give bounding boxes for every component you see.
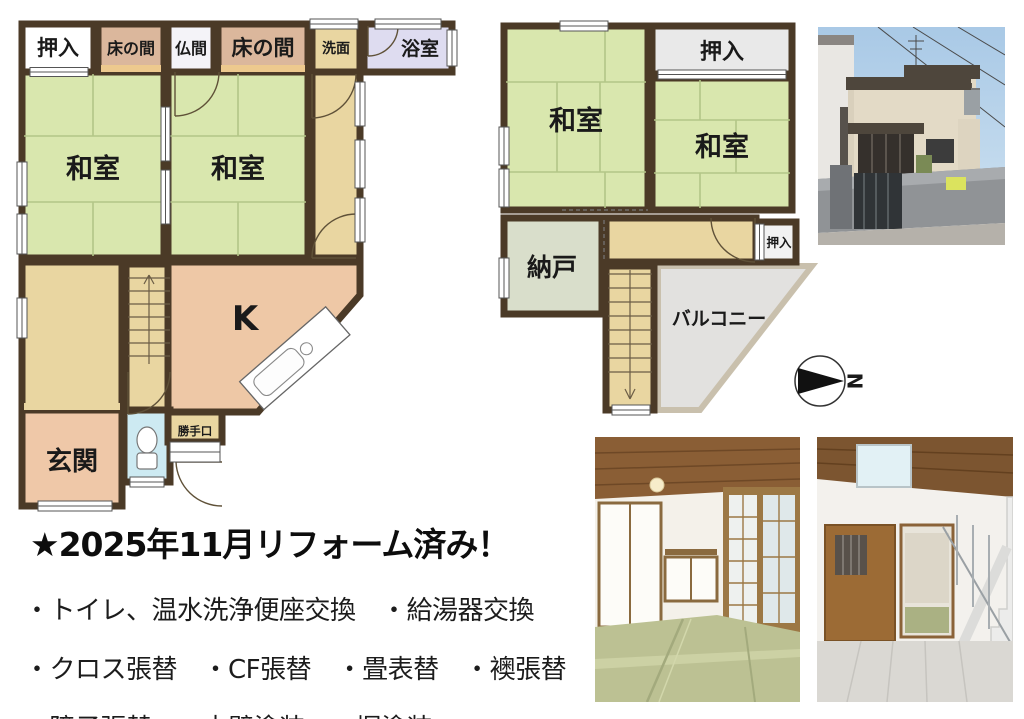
genkan-step-strip bbox=[24, 403, 120, 410]
tokonoma-strip bbox=[221, 65, 305, 72]
hallway-stairs-photo bbox=[817, 437, 1013, 702]
floor2-label-nando: 納戸 bbox=[527, 253, 577, 282]
ceiling-light bbox=[857, 445, 911, 487]
tatami-floor bbox=[595, 615, 800, 702]
floor2-balcony bbox=[658, 266, 812, 410]
floor2-label-oshiire-top: 押入 bbox=[700, 39, 744, 65]
floor1-label-oshiire: 押入 bbox=[37, 36, 79, 60]
floor1-hallway-right bbox=[312, 72, 360, 258]
room-opening bbox=[901, 525, 953, 637]
floor1-label-bathroom: 浴室 bbox=[401, 37, 439, 60]
floor1-hallway-left bbox=[22, 262, 122, 410]
floor2-label-washitsu-left: 和室 bbox=[549, 105, 603, 137]
tokonoma-strip bbox=[101, 65, 161, 72]
renovation-line-1: ・トイレ、温水洗浄便座交換 ・給湯器交換 bbox=[24, 590, 584, 627]
shoji-windows bbox=[723, 487, 800, 632]
floor1-label-washitsu-left: 和室 bbox=[66, 153, 120, 185]
wood-floor bbox=[817, 641, 1013, 702]
floor2-hallway bbox=[606, 218, 756, 262]
floor1-label-butsuma: 仏間 bbox=[175, 39, 207, 58]
floor1-label-tokonoma-left: 床の間 bbox=[107, 39, 155, 58]
floor1-label-genkan: 玄関 bbox=[46, 446, 98, 477]
floor1-plan: 押入 床の間 仏間 床の間 洗面 浴室 和室 和室 K 玄関 勝手口 bbox=[10, 12, 460, 518]
floor1-label-katteguchi: 勝手口 bbox=[178, 424, 213, 438]
floor1-label-washitsu-right: 和室 bbox=[211, 153, 265, 185]
floor1-label-kitchen: K bbox=[232, 299, 260, 339]
floor2-label-washitsu-right: 和室 bbox=[695, 131, 749, 163]
renovation-notes: ★2025年11月リフォーム済み！ ・トイレ、温水洗浄便座交換 ・給湯器交換 ・… bbox=[24, 518, 584, 719]
renovation-line-2: ・クロス張替 ・CF張替 ・畳表替 ・襖張替 bbox=[24, 649, 584, 686]
flyer-page: 押入 床の間 仏間 床の間 洗面 浴室 和室 和室 K 玄関 勝手口 bbox=[0, 0, 1024, 719]
renovation-line-3: ・障子張替 ・内壁塗装 ・塀塗装 bbox=[24, 708, 584, 719]
compass-icon: N bbox=[790, 350, 868, 412]
floor2-label-balcony: バルコニー bbox=[672, 308, 767, 330]
floor2-label-oshiire-small: 押入 bbox=[766, 235, 792, 250]
floor1-label-senmen: 洗面 bbox=[322, 40, 350, 57]
sliding-door bbox=[825, 525, 895, 641]
compass-north-label: N bbox=[843, 373, 867, 390]
exterior-photo bbox=[818, 27, 1005, 245]
toilet-icon bbox=[137, 427, 157, 469]
renovation-title: ★2025年11月リフォーム済み！ bbox=[30, 518, 584, 566]
tatami-room-photo bbox=[595, 437, 800, 702]
floor1-label-tokonoma-right: 床の間 bbox=[232, 36, 295, 60]
